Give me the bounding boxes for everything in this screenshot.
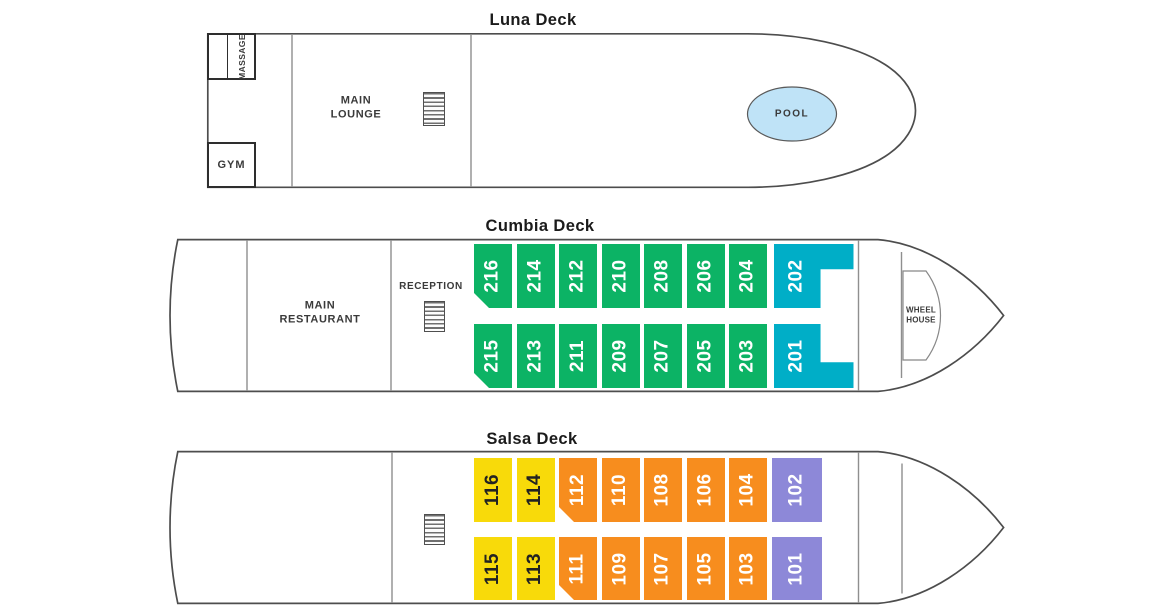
cabin-211[interactable]: 211: [559, 324, 597, 389]
cabin-number-wrap: 110: [602, 458, 640, 522]
cabin-number-label: 202: [786, 259, 808, 292]
cabin-112[interactable]: 112: [559, 458, 597, 522]
salsa-stairs-icon: [424, 514, 445, 545]
cabin-101[interactable]: 101: [772, 537, 822, 600]
massage-room-label-cell: MASSAGE: [227, 35, 255, 78]
cabin-number-label: 104: [737, 473, 759, 506]
cabin-number-label: 101: [786, 552, 808, 585]
cabin-212[interactable]: 212: [559, 244, 597, 309]
cabin-number-label: 111: [567, 553, 589, 584]
cabin-number-wrap: 115: [474, 537, 512, 600]
cabin-210[interactable]: 210: [602, 244, 640, 309]
cabin-114[interactable]: 114: [517, 458, 555, 522]
pool-label: POOL: [775, 109, 809, 120]
reception-label: RECEPTION: [399, 281, 463, 294]
cabin-number-label: 203: [737, 339, 759, 372]
massage-room-label: MASSAGE: [237, 34, 247, 80]
reception-label-text: RECEPTION: [399, 281, 463, 294]
cumbia-stairs-icon: [424, 301, 445, 332]
cabin-number-wrap: 103: [729, 537, 767, 600]
main-restaurant-label: MAIN RESTAURANT: [280, 299, 361, 327]
cabin-number-label: 212: [567, 259, 589, 292]
cabin-number-label: 216: [482, 259, 504, 292]
cabin-103[interactable]: 103: [729, 537, 767, 600]
cabin-number-wrap: 113: [517, 537, 555, 600]
cabin-number-wrap: 212: [559, 244, 597, 309]
cabin-number-wrap: 205: [687, 324, 725, 389]
cabin-number-label: 201: [786, 339, 808, 372]
cabin-number-wrap: 107: [644, 537, 682, 600]
cabin-number-wrap: 105: [687, 537, 725, 600]
cabin-number-label: 115: [482, 552, 504, 584]
cabin-204[interactable]: 204: [729, 244, 767, 309]
cabin-104[interactable]: 104: [729, 458, 767, 522]
cabin-213[interactable]: 213: [517, 324, 555, 389]
cabin-203[interactable]: 203: [729, 324, 767, 389]
gym-room: GYM: [207, 142, 256, 188]
cabin-number-label: 105: [694, 552, 716, 585]
cabin-number-label: 112: [567, 474, 589, 506]
cabin-number-wrap: 101: [772, 537, 822, 600]
cabin-215[interactable]: 215: [474, 324, 512, 389]
cabin-number-label: 204: [737, 259, 759, 292]
cabin-number-label: 107: [652, 552, 674, 585]
cabin-number-wrap: 209: [602, 324, 640, 389]
cabin-105[interactable]: 105: [687, 537, 725, 600]
cabin-number-wrap: 201: [774, 324, 821, 389]
cabin-corner-marker: [474, 373, 489, 388]
wheel-house-label-line2: HOUSE: [906, 316, 936, 326]
cabin-109[interactable]: 109: [602, 537, 640, 600]
cabin-number-wrap: 213: [517, 324, 555, 389]
main-lounge-label-line2: LOUNGE: [331, 108, 382, 122]
cabin-107[interactable]: 107: [644, 537, 682, 600]
massage-room: MASSAGE: [207, 33, 256, 80]
cabin-number-label: 208: [652, 259, 674, 292]
cabin-number-label: 113: [525, 552, 547, 584]
cabin-216[interactable]: 216: [474, 244, 512, 309]
cabin-number-wrap: 109: [602, 537, 640, 600]
cabin-number-wrap: 204: [729, 244, 767, 309]
salsa-deck-title: Salsa Deck: [486, 430, 577, 449]
cabin-number-wrap: 106: [687, 458, 725, 522]
cabin-116[interactable]: 116: [474, 458, 512, 522]
cabin-number-wrap: 203: [729, 324, 767, 389]
main-restaurant-label-line1: MAIN: [280, 299, 361, 313]
cabin-corner-marker: [559, 507, 574, 522]
cabin-108[interactable]: 108: [644, 458, 682, 522]
cabin-number-wrap: 116: [474, 458, 512, 522]
cabin-number-label: 108: [652, 473, 674, 506]
cabin-110[interactable]: 110: [602, 458, 640, 522]
cabin-number-label: 116: [482, 474, 504, 506]
cabin-number-label: 209: [609, 339, 631, 372]
cabin-111[interactable]: 111: [559, 537, 597, 600]
cabin-number-label: 205: [694, 339, 716, 372]
cabin-corner-marker: [559, 585, 574, 600]
cumbia-deck-title: Cumbia Deck: [486, 217, 595, 236]
cabin-number-wrap: 210: [602, 244, 640, 309]
cabin-number-wrap: 108: [644, 458, 682, 522]
cabin-113[interactable]: 113: [517, 537, 555, 600]
cabin-number-label: 102: [786, 473, 808, 506]
main-lounge-label-line1: MAIN: [331, 94, 382, 108]
cabin-number-label: 215: [482, 339, 504, 372]
cabin-number-wrap: 207: [644, 324, 682, 389]
cabin-102[interactable]: 102: [772, 458, 822, 522]
luna-deck-title: Luna Deck: [489, 11, 576, 30]
main-lounge-label: MAIN LOUNGE: [331, 94, 382, 122]
cabin-number-label: 106: [694, 473, 716, 506]
cabin-number-wrap: 104: [729, 458, 767, 522]
cabin-115[interactable]: 115: [474, 537, 512, 600]
cabin-number-label: 103: [737, 552, 759, 585]
ship-deck-plan: Luna Deck Cumbia Deck Salsa Deck MASSAGE…: [0, 0, 1170, 612]
main-restaurant-label-line2: RESTAURANT: [280, 313, 361, 327]
cabin-number-wrap: 208: [644, 244, 682, 309]
cabin-number-label: 214: [524, 259, 546, 292]
cabin-206[interactable]: 206: [687, 244, 725, 309]
cabin-208[interactable]: 208: [644, 244, 682, 309]
cabin-106[interactable]: 106: [687, 458, 725, 522]
cabin-number-label: 211: [567, 340, 589, 372]
cabin-number-wrap: 214: [517, 244, 555, 309]
cabin-number-label: 110: [610, 474, 632, 506]
wheel-house-label-line1: WHEEL: [906, 306, 936, 316]
cabin-number-label: 206: [694, 259, 716, 292]
cabin-number-wrap: 206: [687, 244, 725, 309]
wheel-house-label: WHEEL HOUSE: [906, 306, 936, 327]
cabin-number-label: 210: [609, 259, 631, 292]
cabin-number-label: 213: [524, 339, 546, 372]
cabin-number-label: 109: [609, 552, 631, 585]
luna-stairs-icon: [423, 92, 445, 126]
cabin-207[interactable]: 207: [644, 324, 682, 389]
cabin-209[interactable]: 209: [602, 324, 640, 389]
cabin-214[interactable]: 214: [517, 244, 555, 309]
cabin-corner-marker: [474, 293, 489, 308]
cabin-number-label: 207: [652, 339, 674, 372]
cabin-number-wrap: 211: [559, 324, 597, 389]
cabin-number-wrap: 102: [772, 458, 822, 522]
cabin-number-label: 114: [525, 474, 547, 506]
cabin-number-wrap: 114: [517, 458, 555, 522]
cabin-number-wrap: 202: [774, 244, 821, 309]
cabin-205[interactable]: 205: [687, 324, 725, 389]
gym-room-label: GYM: [217, 159, 245, 171]
